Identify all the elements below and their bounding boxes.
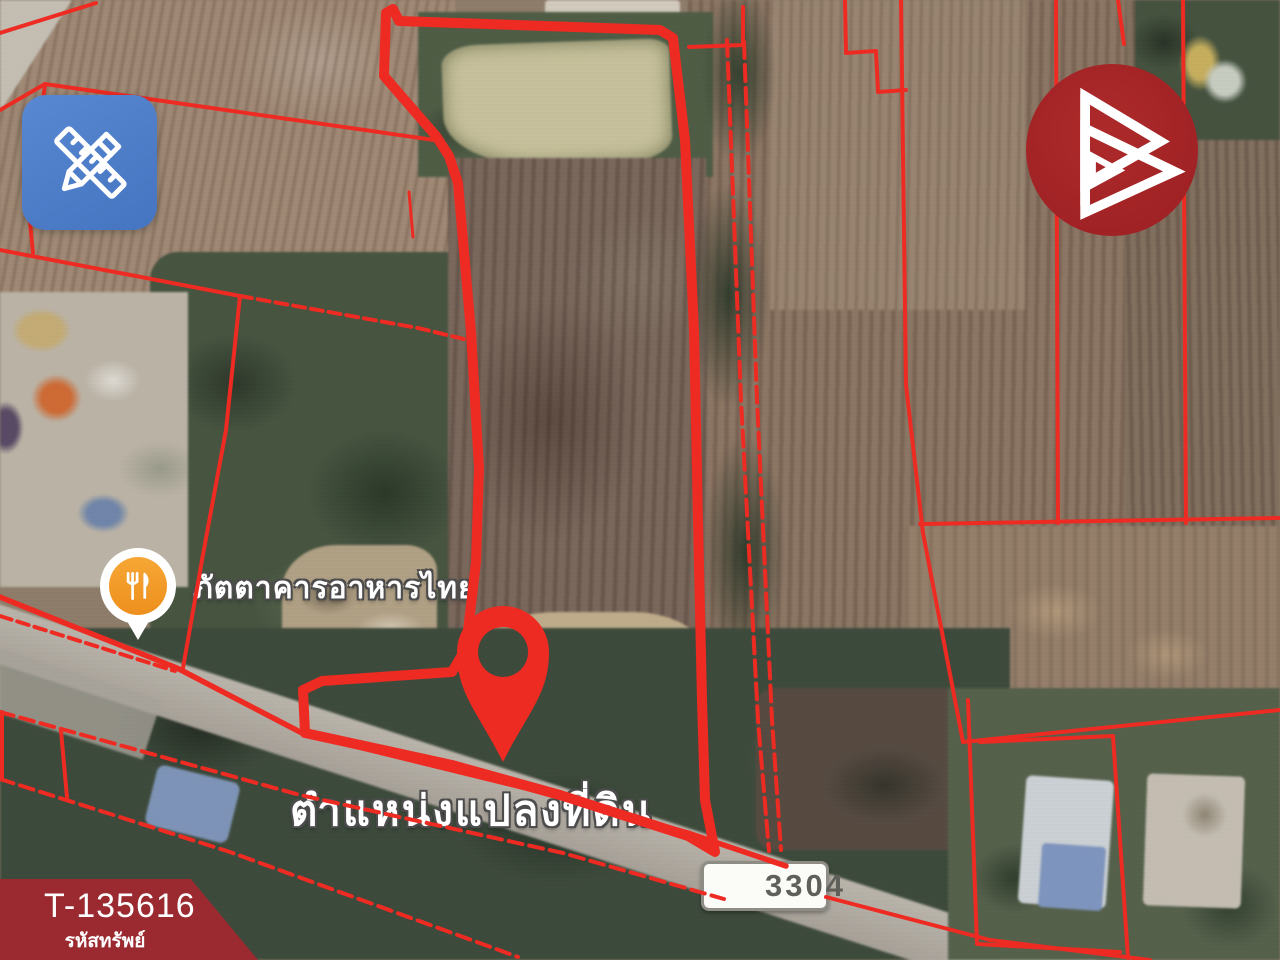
marker-tail (124, 616, 152, 640)
brand-logo (1026, 64, 1198, 236)
route-badge: 3304 (701, 861, 829, 911)
map-canvas[interactable]: ภัตตาคารอาหารไทย ตำแหน่งแปลงที่ดิน 3304 (0, 0, 1280, 960)
fork-knife-icon (120, 567, 156, 605)
route-number: 3304 (765, 864, 846, 908)
pencil (58, 134, 119, 195)
restaurant-label: ภัตตาคารอาหารไทย (193, 565, 477, 612)
plot-position-label: ตำแหน่งแปลงที่ดิน (290, 778, 652, 844)
b-triangles-logo (1026, 64, 1198, 236)
property-code-caption: รหัสทรัพย์ (20, 926, 190, 956)
restaurant-marker[interactable] (100, 548, 176, 648)
pencil-ruler-icon (22, 95, 157, 230)
property-code: T-135616 (44, 887, 196, 926)
